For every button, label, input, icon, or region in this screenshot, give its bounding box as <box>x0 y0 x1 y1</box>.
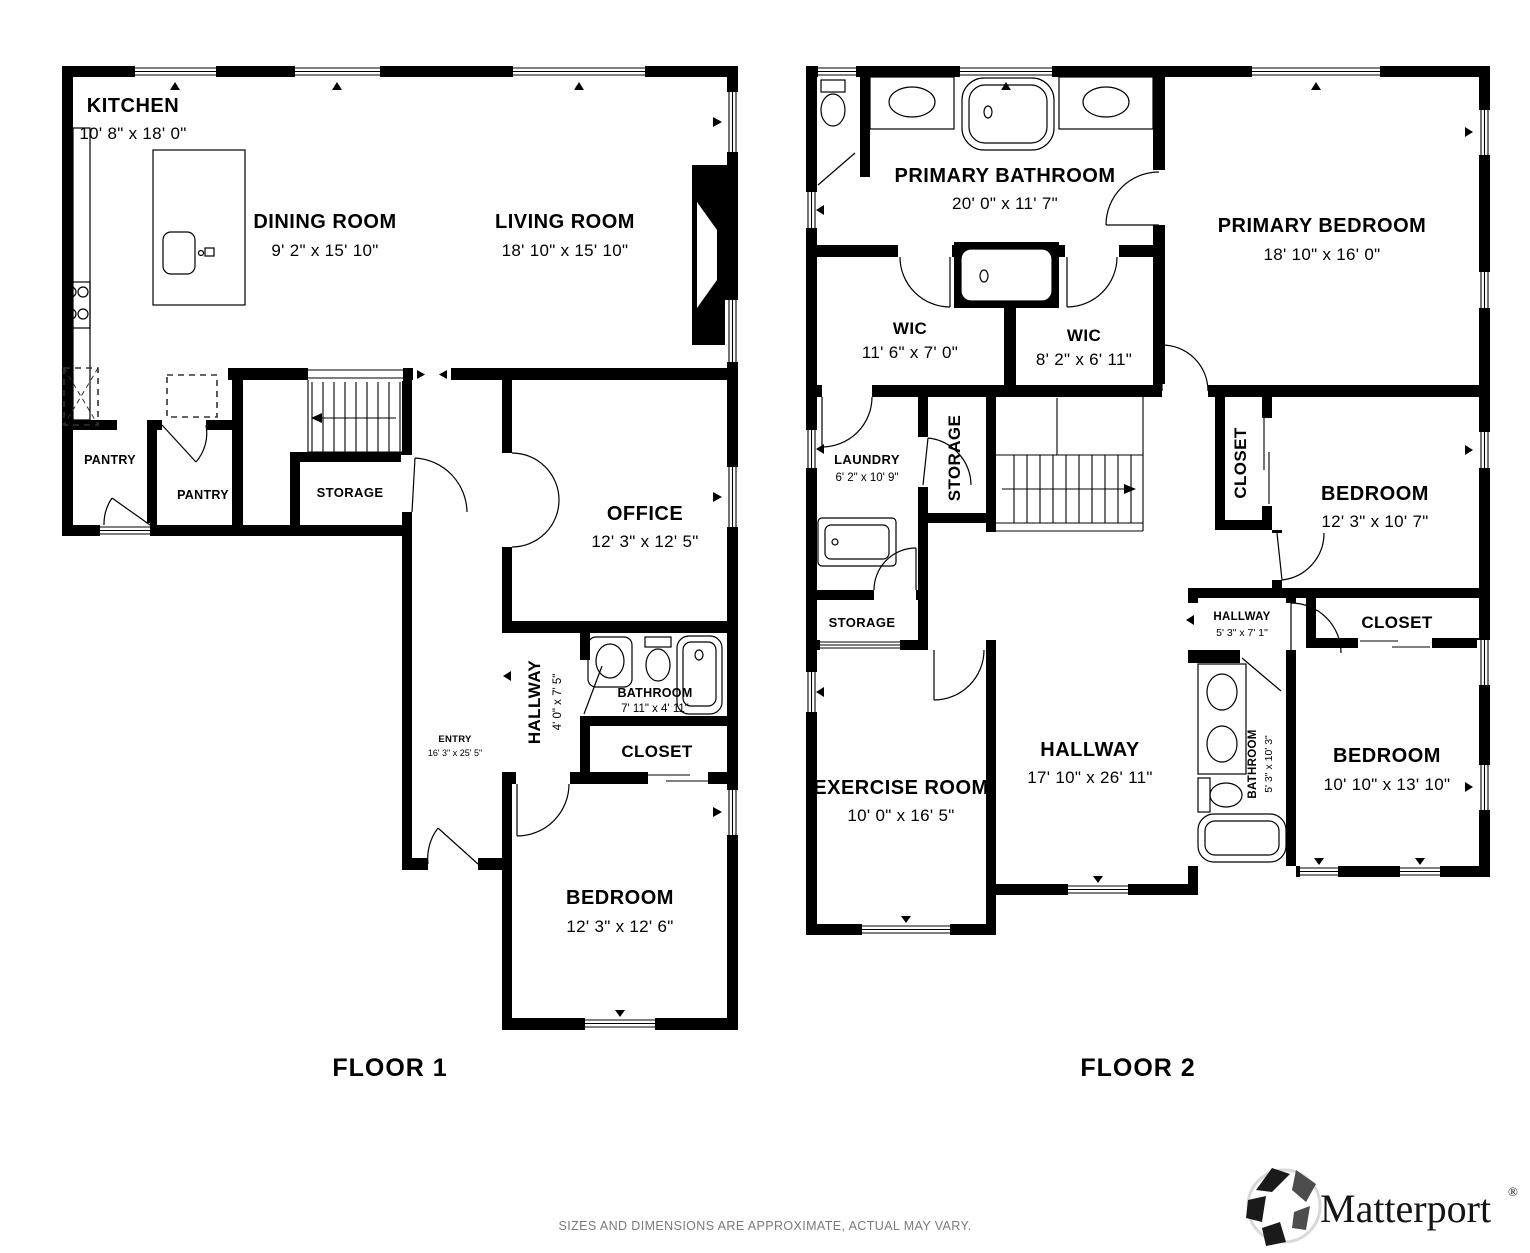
dining-room-dims: 9' 2" x 15' 10" <box>271 241 378 260</box>
floor2-plan: PRIMARY BATHROOM 20' 0" x 11' 7" PRIMARY… <box>804 64 1492 1082</box>
hallway-small-dims: 5' 3" x 7' 1" <box>1216 627 1268 639</box>
floorplan-image: KITCHEN 10' 8" x 18' 0" DINING ROOM 9' 2… <box>0 0 1530 1253</box>
wic2-dims: 8' 2" x 6' 11" <box>1036 350 1132 369</box>
entry-dims: 16' 3" x 25' 5" <box>428 748 482 758</box>
bathroom1-label: BATHROOM <box>617 686 692 700</box>
bathroom-f2-dims: 5' 3" x 10' 3" <box>1263 735 1275 793</box>
primary-bedroom-label: PRIMARY BEDROOM <box>1218 215 1427 237</box>
bedroom-f1-dims: 12' 3" x 12' 6" <box>566 917 673 936</box>
closet1-label: CLOSET <box>621 742 693 761</box>
bathroom-f2-label: BATHROOM <box>1247 729 1259 798</box>
toilet-icon <box>645 637 671 681</box>
storage1-f2-label: STORAGE <box>945 415 964 502</box>
toilet-icon <box>1198 778 1242 812</box>
floor2-title: FLOOR 2 <box>1080 1054 1195 1082</box>
footer: SIZES AND DIMENSIONS ARE APPROXIMATE, AC… <box>559 1168 1518 1246</box>
wic1-dims: 11' 6" x 7' 0" <box>862 343 958 362</box>
bathroom1-dims: 7' 11" x 4' 11" <box>621 703 689 715</box>
bedroom2-f2-label: BEDROOM <box>1333 745 1441 767</box>
laundry-label: LAUNDRY <box>834 452 900 467</box>
toilet-icon <box>821 80 845 126</box>
office-dims: 12' 3" x 12' 5" <box>591 532 698 551</box>
appliance-dashed-boxes <box>64 368 217 425</box>
pantry2-label: PANTRY <box>177 488 229 502</box>
floor1-plan: KITCHEN 10' 8" x 18' 0" DINING ROOM 9' 2… <box>62 64 740 1082</box>
kitchen-dims: 10' 8" x 18' 0" <box>79 124 186 143</box>
floorplan-page: KITCHEN 10' 8" x 18' 0" DINING ROOM 9' 2… <box>0 0 1530 1253</box>
hallway1-label: HALLWAY <box>525 660 544 745</box>
primary-bedroom-dims: 18' 10" x 16' 0" <box>1264 245 1381 264</box>
entry-label: ENTRY <box>438 734 472 745</box>
hallway-small-label: HALLWAY <box>1213 611 1270 623</box>
bedroom1-f2-label: BEDROOM <box>1321 483 1429 505</box>
bathtub-icon <box>1198 814 1286 862</box>
bedroom-f1-label: BEDROOM <box>566 887 674 909</box>
laundry-dims: 6' 2" x 10' 9" <box>835 472 898 484</box>
office-label: OFFICE <box>607 503 683 525</box>
kitchen-label: KITCHEN <box>87 95 179 117</box>
sink-icon <box>588 637 632 687</box>
floor1-doors <box>104 367 602 871</box>
pantry1-label: PANTRY <box>84 453 136 467</box>
wic2-label: WIC <box>1067 326 1101 345</box>
laundry-sink-icon <box>818 518 896 566</box>
kitchen-island-icon <box>153 150 245 305</box>
hallway-f2-dims: 17' 10" x 26' 11" <box>1027 768 1152 787</box>
floor1-title: FLOOR 1 <box>332 1054 447 1082</box>
storage-label: STORAGE <box>317 485 384 500</box>
exercise-room-label: EXERCISE ROOM <box>813 777 988 799</box>
registered-mark: ® <box>1508 1184 1518 1199</box>
hallway-f2-label: HALLWAY <box>1040 739 1140 761</box>
living-room-dims: 18' 10" x 15' 10" <box>502 241 629 260</box>
matterport-wordmark: Matterport <box>1320 1186 1491 1231</box>
primary-bathroom-label: PRIMARY BATHROOM <box>895 165 1116 187</box>
closet2-f2-label: CLOSET <box>1361 613 1433 632</box>
disclaimer-text: SIZES AND DIMENSIONS ARE APPROXIMATE, AC… <box>559 1219 972 1233</box>
closet1-f2-label: CLOSET <box>1231 427 1250 499</box>
bedroom2-f2-dims: 10' 10" x 13' 10" <box>1324 775 1451 794</box>
hallway1-dims: 4' 0" x 7' 5" <box>552 674 564 731</box>
staircase-floor2 <box>996 397 1143 531</box>
exercise-room-dims: 10' 0" x 16' 5" <box>847 806 954 825</box>
staircase-floor1 <box>308 367 403 452</box>
bedroom1-f2-dims: 12' 3" x 10' 7" <box>1321 512 1428 531</box>
storage2-f2-label: STORAGE <box>829 615 896 630</box>
dining-room-label: DINING ROOM <box>253 211 396 233</box>
matterport-logo-icon <box>1246 1168 1320 1246</box>
shower-icon <box>954 242 1059 308</box>
wic1-label: WIC <box>893 319 927 338</box>
living-room-label: LIVING ROOM <box>495 211 635 233</box>
primary-bathroom-dims: 20' 0" x 11' 7" <box>952 194 1058 213</box>
primary-bathroom-fixtures <box>821 77 1153 150</box>
